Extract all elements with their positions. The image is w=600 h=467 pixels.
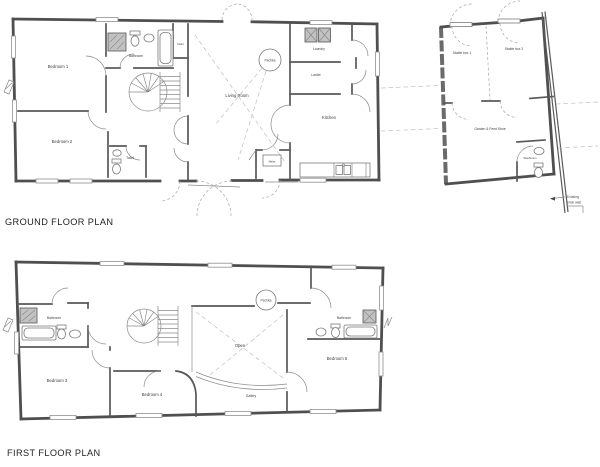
ground-spiral-stair bbox=[129, 72, 180, 112]
room-label-bedroom-2: Bedroom 2 bbox=[52, 139, 73, 144]
first-bathroom-left-fixtures bbox=[20, 308, 81, 340]
ground-floor-title: GROUND FLOOR PLAN bbox=[5, 217, 113, 227]
floor-plan-drawing: Bedroom 1 Bathroom boiler Bedroom 2 Toil… bbox=[0, 0, 600, 467]
room-label-meter: Meter bbox=[269, 159, 276, 163]
first-bathroom-right-fixtures bbox=[316, 310, 377, 338]
ground-wall-break-symbol bbox=[4, 80, 14, 94]
room-label-larder: Larder bbox=[311, 73, 321, 77]
ground-internal-walls bbox=[18, 24, 356, 180]
room-label-gallery: Gallery bbox=[246, 394, 257, 398]
ground-laundry-appliances bbox=[305, 28, 331, 42]
room-label-gf-pechka: Pechka bbox=[265, 59, 276, 63]
first-floor-plan: Bathroom Bedroom 3 Bedroom 4 Pechka Open… bbox=[3, 262, 392, 420]
room-label-ff-bathroom-left: Bathroom bbox=[47, 316, 62, 320]
room-label-ff-bathroom-right: Bathroom bbox=[337, 316, 352, 320]
first-floor-title: FIRST FLOOR PLAN bbox=[7, 448, 101, 458]
ground-bathroom-fixtures bbox=[108, 30, 173, 66]
stable-block-plan: Stable box 1 Stable box 2 Garden & Feed … bbox=[381, 1, 598, 213]
room-label-toilet: Toilet bbox=[126, 156, 134, 160]
first-exterior-walls bbox=[16, 262, 383, 419]
stable-internal-walls bbox=[444, 26, 553, 181]
room-label-bedroom-5: Bedroom 5 bbox=[327, 356, 348, 361]
drawing-sheet: Bedroom 1 Bathroom boiler Bedroom 2 Toil… bbox=[0, 0, 600, 467]
ground-exterior-walls bbox=[13, 19, 379, 181]
room-label-ff-pechka: Pechka bbox=[261, 299, 272, 303]
ground-floor-plan: Bedroom 1 Bathroom boiler Bedroom 2 Toil… bbox=[4, 4, 379, 216]
washroom-fixtures bbox=[534, 147, 544, 177]
room-label-garden-feed-store: Garden & Feed Store bbox=[474, 127, 506, 131]
room-label-gf-bathroom: Bathroom bbox=[129, 54, 144, 58]
stable-door-leaves bbox=[450, 1, 533, 162]
first-internal-walls bbox=[18, 268, 381, 417]
room-label-kitchen: Kitchen bbox=[322, 115, 337, 120]
room-label-laundry: Laundry bbox=[313, 47, 325, 51]
room-label-open: Open bbox=[235, 343, 246, 348]
room-label-boiler: boiler bbox=[177, 42, 184, 46]
annotation-existing-line2: brick wall bbox=[567, 201, 581, 205]
ground-windows bbox=[11, 18, 379, 183]
annotation-existing-line1: Existing bbox=[567, 195, 579, 199]
room-label-bedroom-3: Bedroom 3 bbox=[47, 378, 68, 383]
ground-pechka-stove bbox=[195, 35, 285, 162]
existing-brick-wall bbox=[542, 12, 583, 214]
room-label-stable-box-1: Stable box 1 bbox=[453, 51, 471, 55]
room-label-bedroom-1: Bedroom 1 bbox=[48, 64, 69, 69]
first-windows bbox=[15, 262, 384, 420]
first-spiral-stair bbox=[127, 306, 178, 346]
room-label-stable-box-2: Stable box 2 bbox=[505, 47, 523, 51]
ground-kitchen-counter bbox=[300, 163, 370, 177]
room-label-bedroom-4: Bedroom 4 bbox=[142, 392, 163, 397]
ground-toilet-fixtures bbox=[112, 150, 121, 174]
room-label-washroom: Washroom bbox=[524, 156, 538, 160]
room-label-living-room: Living Room bbox=[225, 93, 249, 98]
